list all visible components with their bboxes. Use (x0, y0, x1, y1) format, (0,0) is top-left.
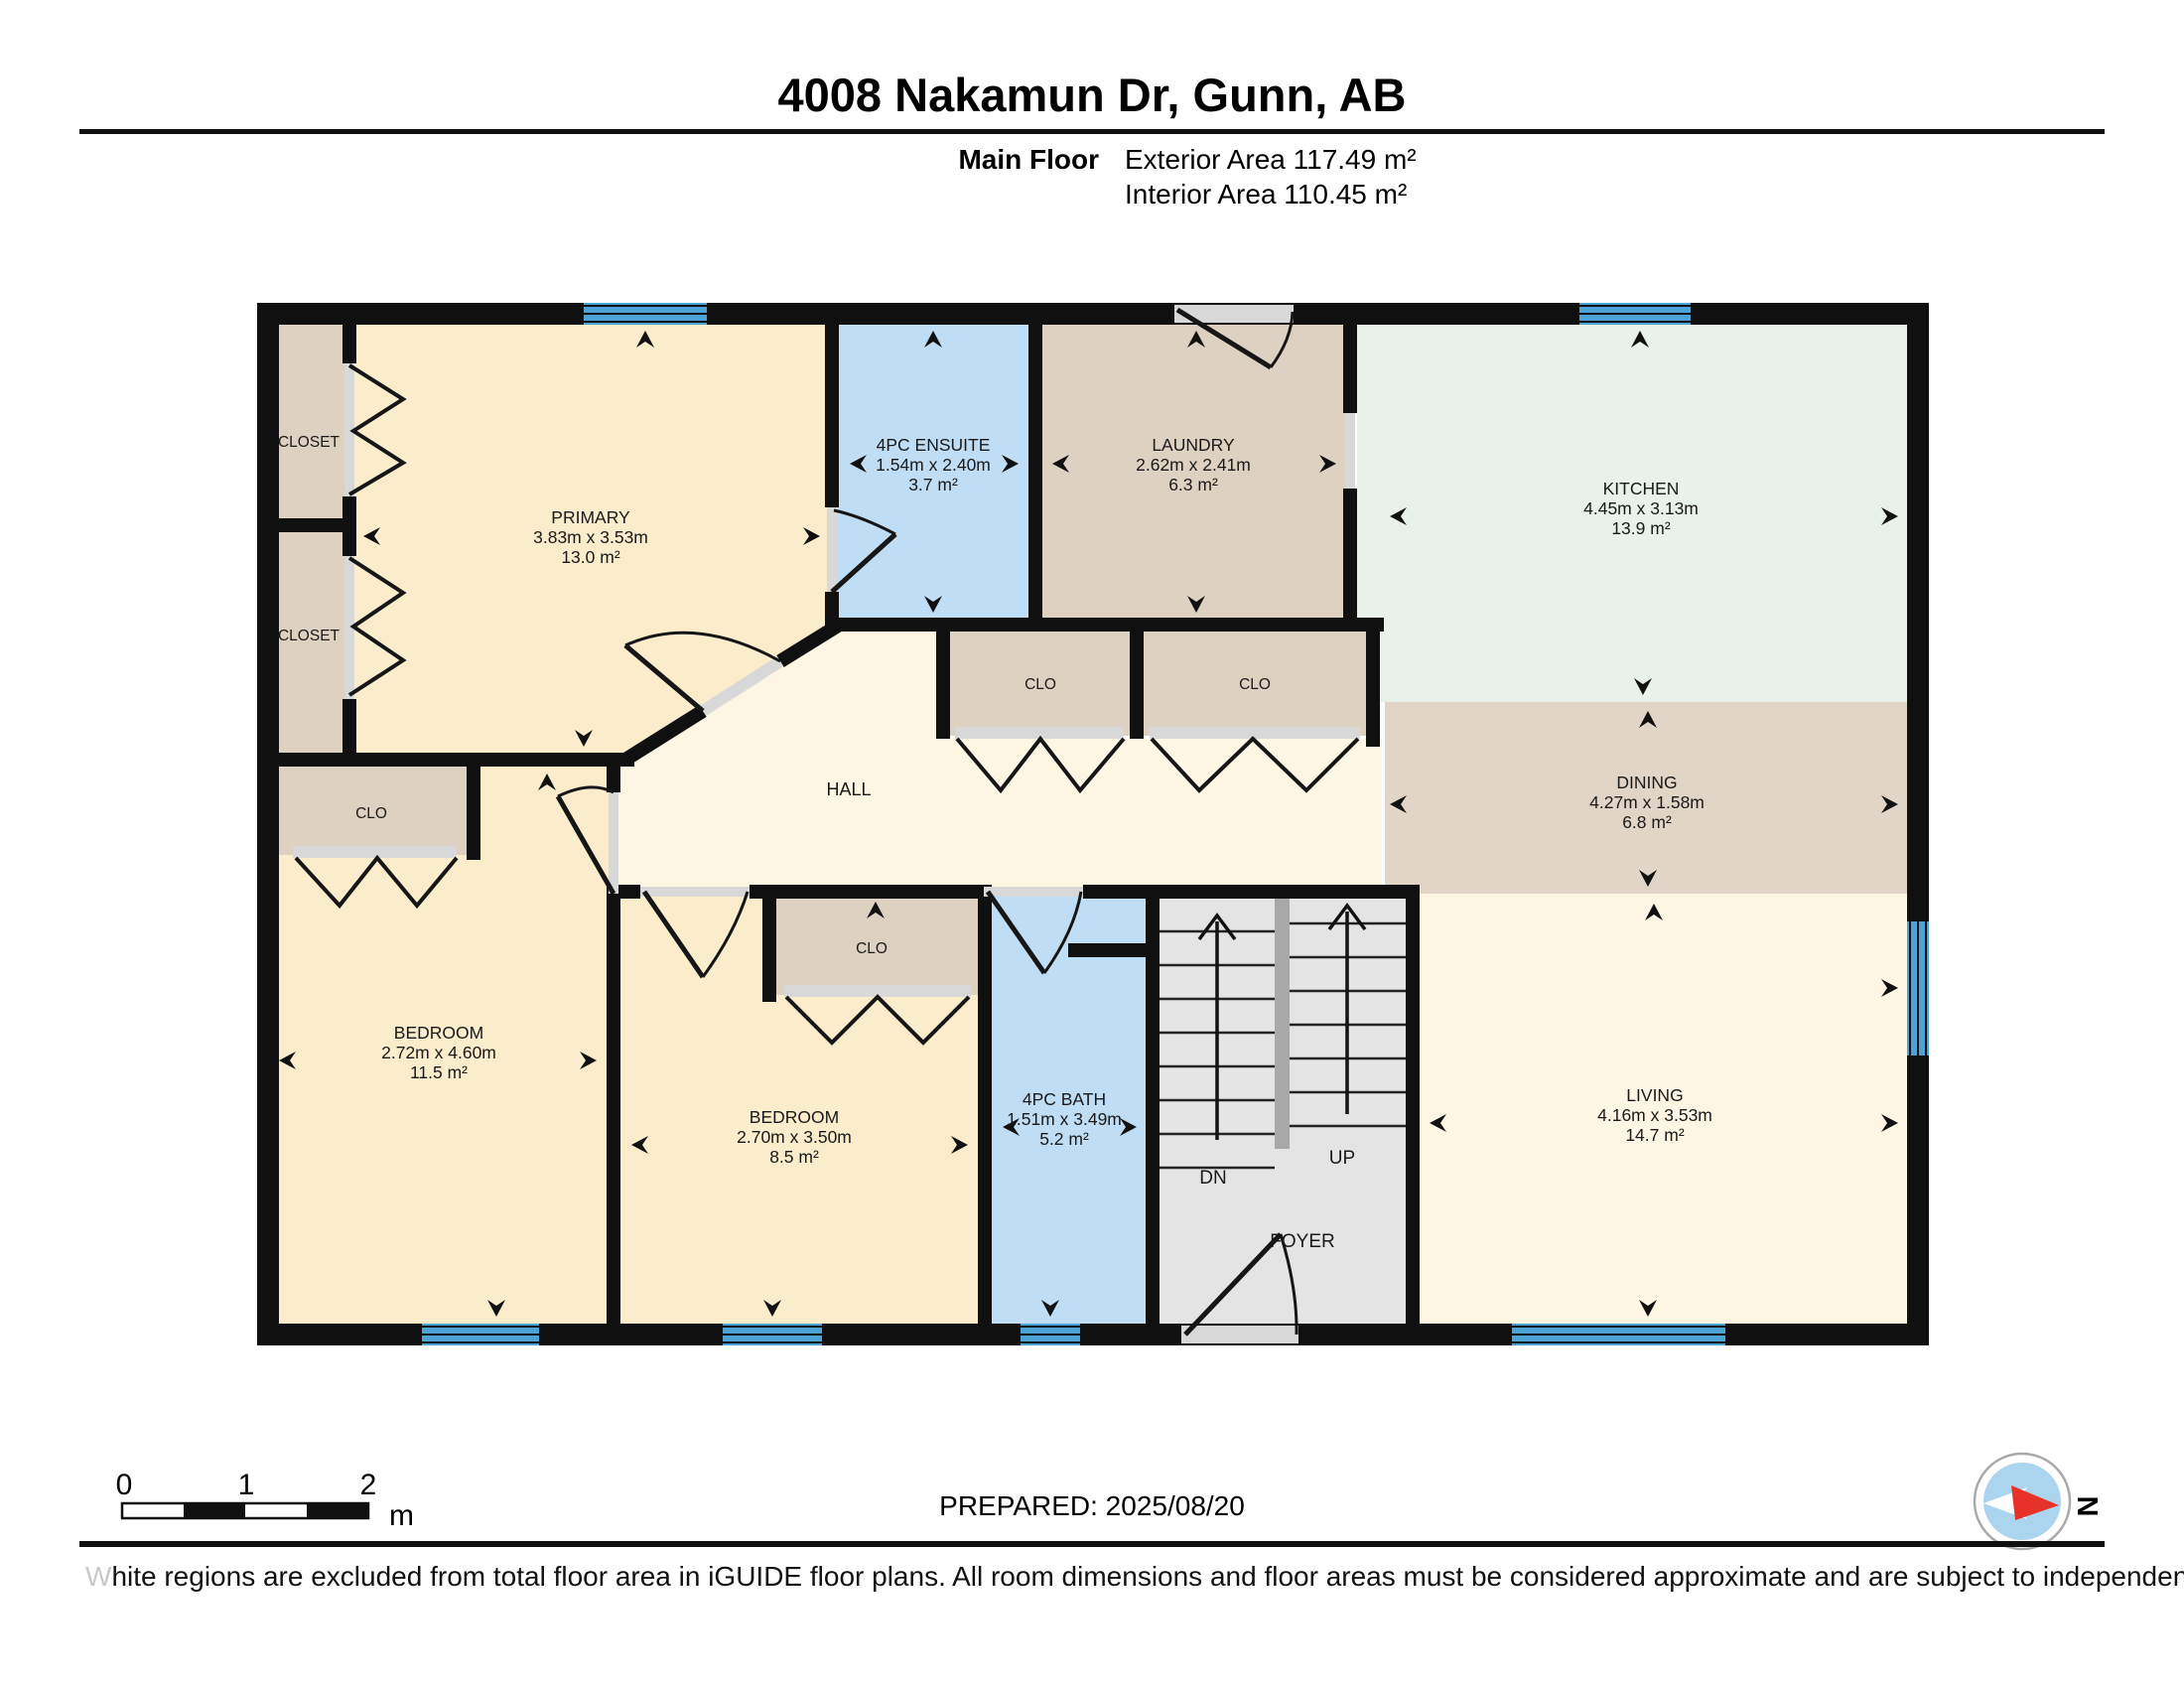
kitchen-dims: 4.45m x 3.13m (1583, 498, 1699, 518)
closet-column (268, 314, 349, 763)
stair-divider (1275, 899, 1290, 1149)
interior-area: Interior Area 110.45 m² (1125, 179, 1407, 210)
compass-n-label: N (2071, 1496, 2103, 1517)
window-living (1512, 1324, 1725, 1345)
footer-divider (79, 1541, 2105, 1547)
bath-dims: 1.51m x 3.49m (1007, 1109, 1122, 1129)
kitchen-area: 13.9 m² (1611, 518, 1670, 538)
bath-name: 4PC BATH (1023, 1089, 1106, 1109)
bedroom2-area: 8.5 m² (769, 1147, 819, 1167)
label-closet-top: CLOSET (278, 434, 341, 451)
label-clo-hall-right: CLO (1239, 676, 1271, 693)
label-stairs-up: UP (1329, 1148, 1355, 1169)
scale-unit: m (389, 1499, 414, 1532)
laundry-dims: 2.62m x 2.41m (1136, 455, 1251, 475)
label-clo-bed1: CLO (355, 805, 387, 822)
disclaimer-text: White regions are excluded from total fl… (85, 1561, 2184, 1593)
scale-bar: 0 1 2 m (116, 1469, 414, 1532)
window-kitchen (1579, 303, 1691, 325)
living-area: 14.7 m² (1625, 1125, 1684, 1145)
ensuite-name: 4PC ENSUITE (877, 435, 991, 455)
window-living-side (1907, 921, 1929, 1055)
kitchen-name: KITCHEN (1603, 479, 1680, 498)
label-hall: HALL (826, 779, 871, 799)
primary-dims: 3.83m x 3.53m (533, 527, 648, 547)
ensuite-area: 3.7 m² (908, 475, 958, 494)
scale-tick-1: 1 (238, 1469, 255, 1501)
ensuite-dims: 1.54m x 2.40m (876, 455, 991, 475)
window-bedroom1 (422, 1324, 539, 1345)
primary-name: PRIMARY (551, 507, 630, 527)
exterior-area: Exterior Area 117.49 m² (1125, 144, 1417, 175)
dining-dims: 4.27m x 1.58m (1589, 792, 1705, 812)
living-name: LIVING (1626, 1085, 1683, 1105)
bedroom1-name: BEDROOM (394, 1023, 483, 1043)
label-clo-bed2: CLO (856, 940, 887, 957)
bath-area: 5.2 m² (1039, 1129, 1089, 1149)
page-title: 4008 Nakamun Dr, Gunn, AB (778, 69, 1407, 121)
bedroom1-area: 11.5 m² (410, 1062, 468, 1082)
laundry-name: LAUNDRY (1152, 435, 1235, 455)
floor-plan-page: 4008 Nakamun Dr, Gunn, AB Main Floor Ext… (0, 0, 2184, 1688)
window-bedroom2 (723, 1324, 822, 1345)
prepared-date: PREPARED: 2025/08/20 (939, 1490, 1245, 1521)
primary-area: 13.0 m² (561, 547, 619, 567)
scale-tick-0: 0 (116, 1469, 133, 1501)
header-divider (79, 129, 2105, 134)
bedroom2-name: BEDROOM (750, 1107, 839, 1127)
bedroom1-dims: 2.72m x 4.60m (381, 1043, 496, 1062)
dining-name: DINING (1616, 773, 1677, 792)
dining-area: 6.8 m² (1622, 812, 1672, 832)
laundry-area: 6.3 m² (1168, 475, 1218, 494)
scale-tick-2: 2 (360, 1469, 377, 1501)
window-primary (584, 303, 707, 325)
floor-label: Main Floor (958, 144, 1099, 175)
label-closet-bottom: CLOSET (278, 628, 341, 644)
label-clo-hall-left: CLO (1024, 676, 1056, 693)
window-bath (1021, 1324, 1080, 1345)
floor-plan-canvas: 4008 Nakamun Dr, Gunn, AB Main Floor Ext… (0, 0, 2184, 1688)
label-foyer: FOYER (1270, 1231, 1334, 1252)
living-dims: 4.16m x 3.53m (1597, 1105, 1712, 1125)
label-stairs-dn: DN (1199, 1168, 1226, 1189)
compass-icon: N (1975, 1454, 2103, 1549)
bedroom2-dims: 2.70m x 3.50m (737, 1127, 852, 1147)
